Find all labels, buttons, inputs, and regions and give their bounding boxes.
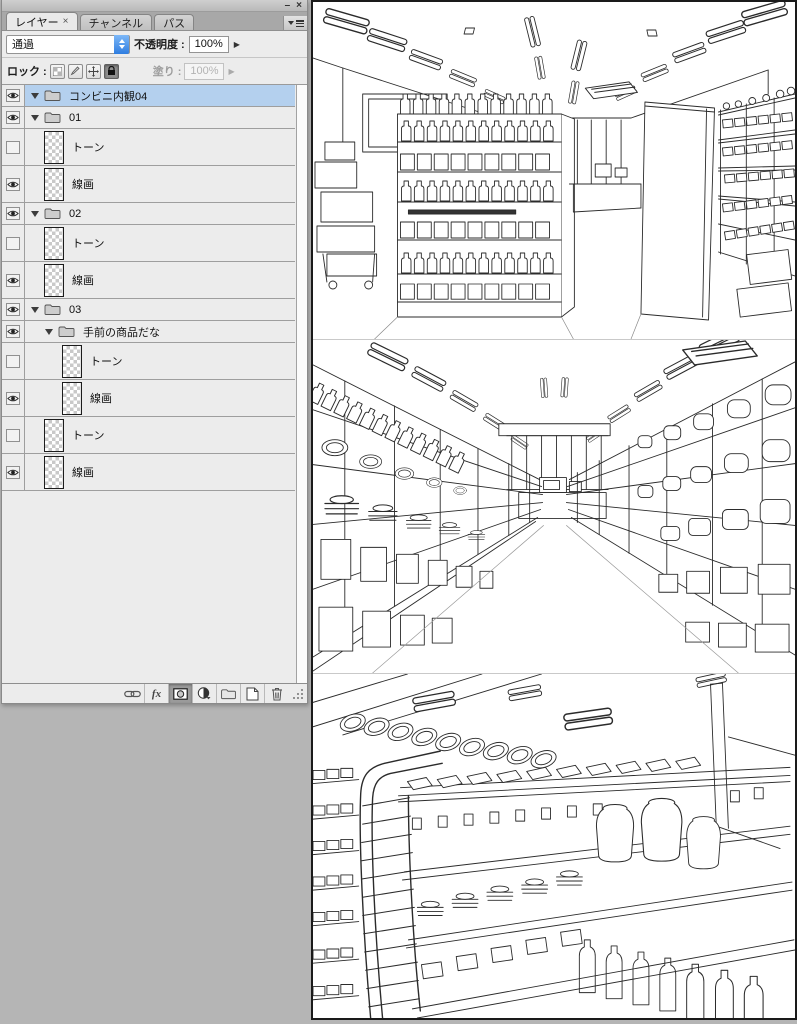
fx-icon: fx <box>152 688 161 700</box>
panel-menu-arrow-icon <box>288 21 294 25</box>
layer-row[interactable]: トーン <box>2 129 295 166</box>
layer-row-group[interactable]: 02 <box>2 203 295 225</box>
layer-row[interactable]: 線画 <box>2 166 295 203</box>
layer-thumbnail[interactable] <box>62 382 82 415</box>
store-shelf-closeup-lineart <box>313 674 795 1018</box>
disclosure-triangle[interactable] <box>45 329 53 335</box>
lock-transparency-button[interactable] <box>50 64 65 79</box>
folder-icon <box>44 111 61 124</box>
lock-label: ロック : <box>7 63 47 79</box>
layer-style-button[interactable]: fx <box>144 684 168 703</box>
layer-row[interactable]: 線画 <box>2 380 295 417</box>
move-icon <box>88 66 99 77</box>
panel-menu-button[interactable] <box>283 16 307 30</box>
layer-row-group[interactable]: 01 <box>2 107 295 129</box>
panel-menu-lines-icon <box>296 20 304 27</box>
layer-row-group[interactable]: 手前の商品だな <box>2 321 295 343</box>
store-interior-overview-lineart <box>313 2 795 339</box>
lock-all-button[interactable] <box>104 64 119 79</box>
stepper-icon[interactable] <box>114 35 129 54</box>
layer-row[interactable]: 線画 <box>2 454 295 491</box>
lock-row: ロック : <box>2 58 307 85</box>
visibility-toggle[interactable] <box>2 343 25 379</box>
layer-row[interactable]: トーン <box>2 225 295 262</box>
visibility-toggle[interactable] <box>2 129 25 165</box>
disclosure-triangle[interactable] <box>31 307 39 313</box>
eye-icon <box>7 91 19 100</box>
lock-paint-button[interactable] <box>68 64 83 79</box>
canvas-image-2 <box>313 339 795 673</box>
new-group-folder-icon <box>220 688 237 700</box>
eye-icon <box>7 327 19 336</box>
layer-row[interactable]: トーン <box>2 343 295 380</box>
panel-footer: fx <box>2 683 307 703</box>
visibility-toggle[interactable] <box>2 262 25 298</box>
visibility-toggle[interactable] <box>2 380 25 416</box>
link-icon <box>124 689 141 699</box>
tab-paths[interactable]: パス <box>154 14 194 30</box>
eye-icon <box>7 305 19 314</box>
trash-icon <box>271 687 283 701</box>
eye-icon <box>7 113 19 122</box>
store-aisle-perspective-lineart <box>313 340 795 673</box>
visibility-toggle[interactable] <box>2 321 25 342</box>
layer-thumbnail[interactable] <box>44 264 64 297</box>
layer-row-group[interactable]: コンビニ内観04 <box>2 85 295 107</box>
disclosure-triangle[interactable] <box>31 211 39 217</box>
link-layers-button[interactable] <box>120 684 144 703</box>
canvas-image-3 <box>313 673 795 1018</box>
tab-channels[interactable]: チャンネル <box>80 14 153 30</box>
folder-icon <box>44 207 61 220</box>
layers-panel: – × レイヤー × チャンネル パス 通過 <box>1 0 308 704</box>
scrollbar[interactable] <box>296 85 307 683</box>
panel-tabbar: レイヤー × チャンネル パス <box>2 12 307 31</box>
blend-mode-row: 通過 不透明度 : 100% ▶ <box>2 31 307 58</box>
add-layer-mask-button[interactable] <box>168 684 192 703</box>
tab-layers[interactable]: レイヤー × <box>6 12 78 30</box>
transparency-icon <box>53 67 62 76</box>
minimize-icon[interactable]: – <box>285 1 291 11</box>
layer-thumbnail[interactable] <box>62 345 82 378</box>
folder-icon <box>58 325 75 338</box>
opacity-label: 不透明度 : <box>134 36 185 52</box>
close-icon[interactable]: × <box>296 1 302 11</box>
disclosure-triangle[interactable] <box>31 115 39 121</box>
fill-slider-arrow-icon: ▶ <box>228 67 234 76</box>
delete-layer-button[interactable] <box>264 684 288 703</box>
visibility-toggle[interactable] <box>2 203 25 224</box>
opacity-slider-arrow-icon[interactable]: ▶ <box>234 40 240 49</box>
panel-resize-grip[interactable] <box>292 688 304 700</box>
new-adjustment-layer-button[interactable] <box>192 684 216 703</box>
disclosure-triangle[interactable] <box>31 93 39 99</box>
eye-icon <box>7 468 19 477</box>
layer-thumbnail[interactable] <box>44 131 64 164</box>
visibility-toggle[interactable] <box>2 107 25 128</box>
new-group-button[interactable] <box>216 684 240 703</box>
adjustment-layer-icon <box>197 687 212 700</box>
layer-row[interactable]: トーン <box>2 417 295 454</box>
folder-icon <box>44 89 61 102</box>
visibility-toggle[interactable] <box>2 454 25 490</box>
fill-input: 100% <box>184 63 224 80</box>
lock-position-button[interactable] <box>86 64 101 79</box>
new-layer-icon <box>246 687 259 701</box>
lock-icon <box>107 66 116 76</box>
layer-thumbnail[interactable] <box>44 227 64 260</box>
folder-icon <box>44 303 61 316</box>
layer-thumbnail[interactable] <box>44 168 64 201</box>
eye-icon <box>7 209 19 218</box>
visibility-toggle[interactable] <box>2 225 25 261</box>
eye-icon <box>7 276 19 285</box>
layer-row-group[interactable]: 03 <box>2 299 295 321</box>
visibility-toggle[interactable] <box>2 299 25 320</box>
eye-icon <box>7 394 19 403</box>
opacity-input[interactable]: 100% <box>189 36 229 53</box>
fill-label: 塗り : <box>153 63 182 79</box>
canvas-area <box>311 0 797 1020</box>
layers-list: コンビニ内観04 01 トーン <box>2 85 307 683</box>
new-layer-button[interactable] <box>240 684 264 703</box>
layer-mask-icon <box>173 688 188 700</box>
visibility-toggle[interactable] <box>2 166 25 202</box>
visibility-toggle[interactable] <box>2 85 25 106</box>
eye-icon <box>7 180 19 189</box>
canvas-image-1 <box>313 2 795 339</box>
tab-close-icon[interactable]: × <box>63 16 69 27</box>
panel-titlebar: – × <box>2 0 307 12</box>
layer-row[interactable]: 線画 <box>2 262 295 299</box>
brush-icon <box>70 66 80 76</box>
blend-mode-select[interactable]: 通過 <box>6 35 130 54</box>
layer-thumbnail[interactable] <box>44 419 64 452</box>
visibility-toggle[interactable] <box>2 417 25 453</box>
layer-thumbnail[interactable] <box>44 456 64 489</box>
